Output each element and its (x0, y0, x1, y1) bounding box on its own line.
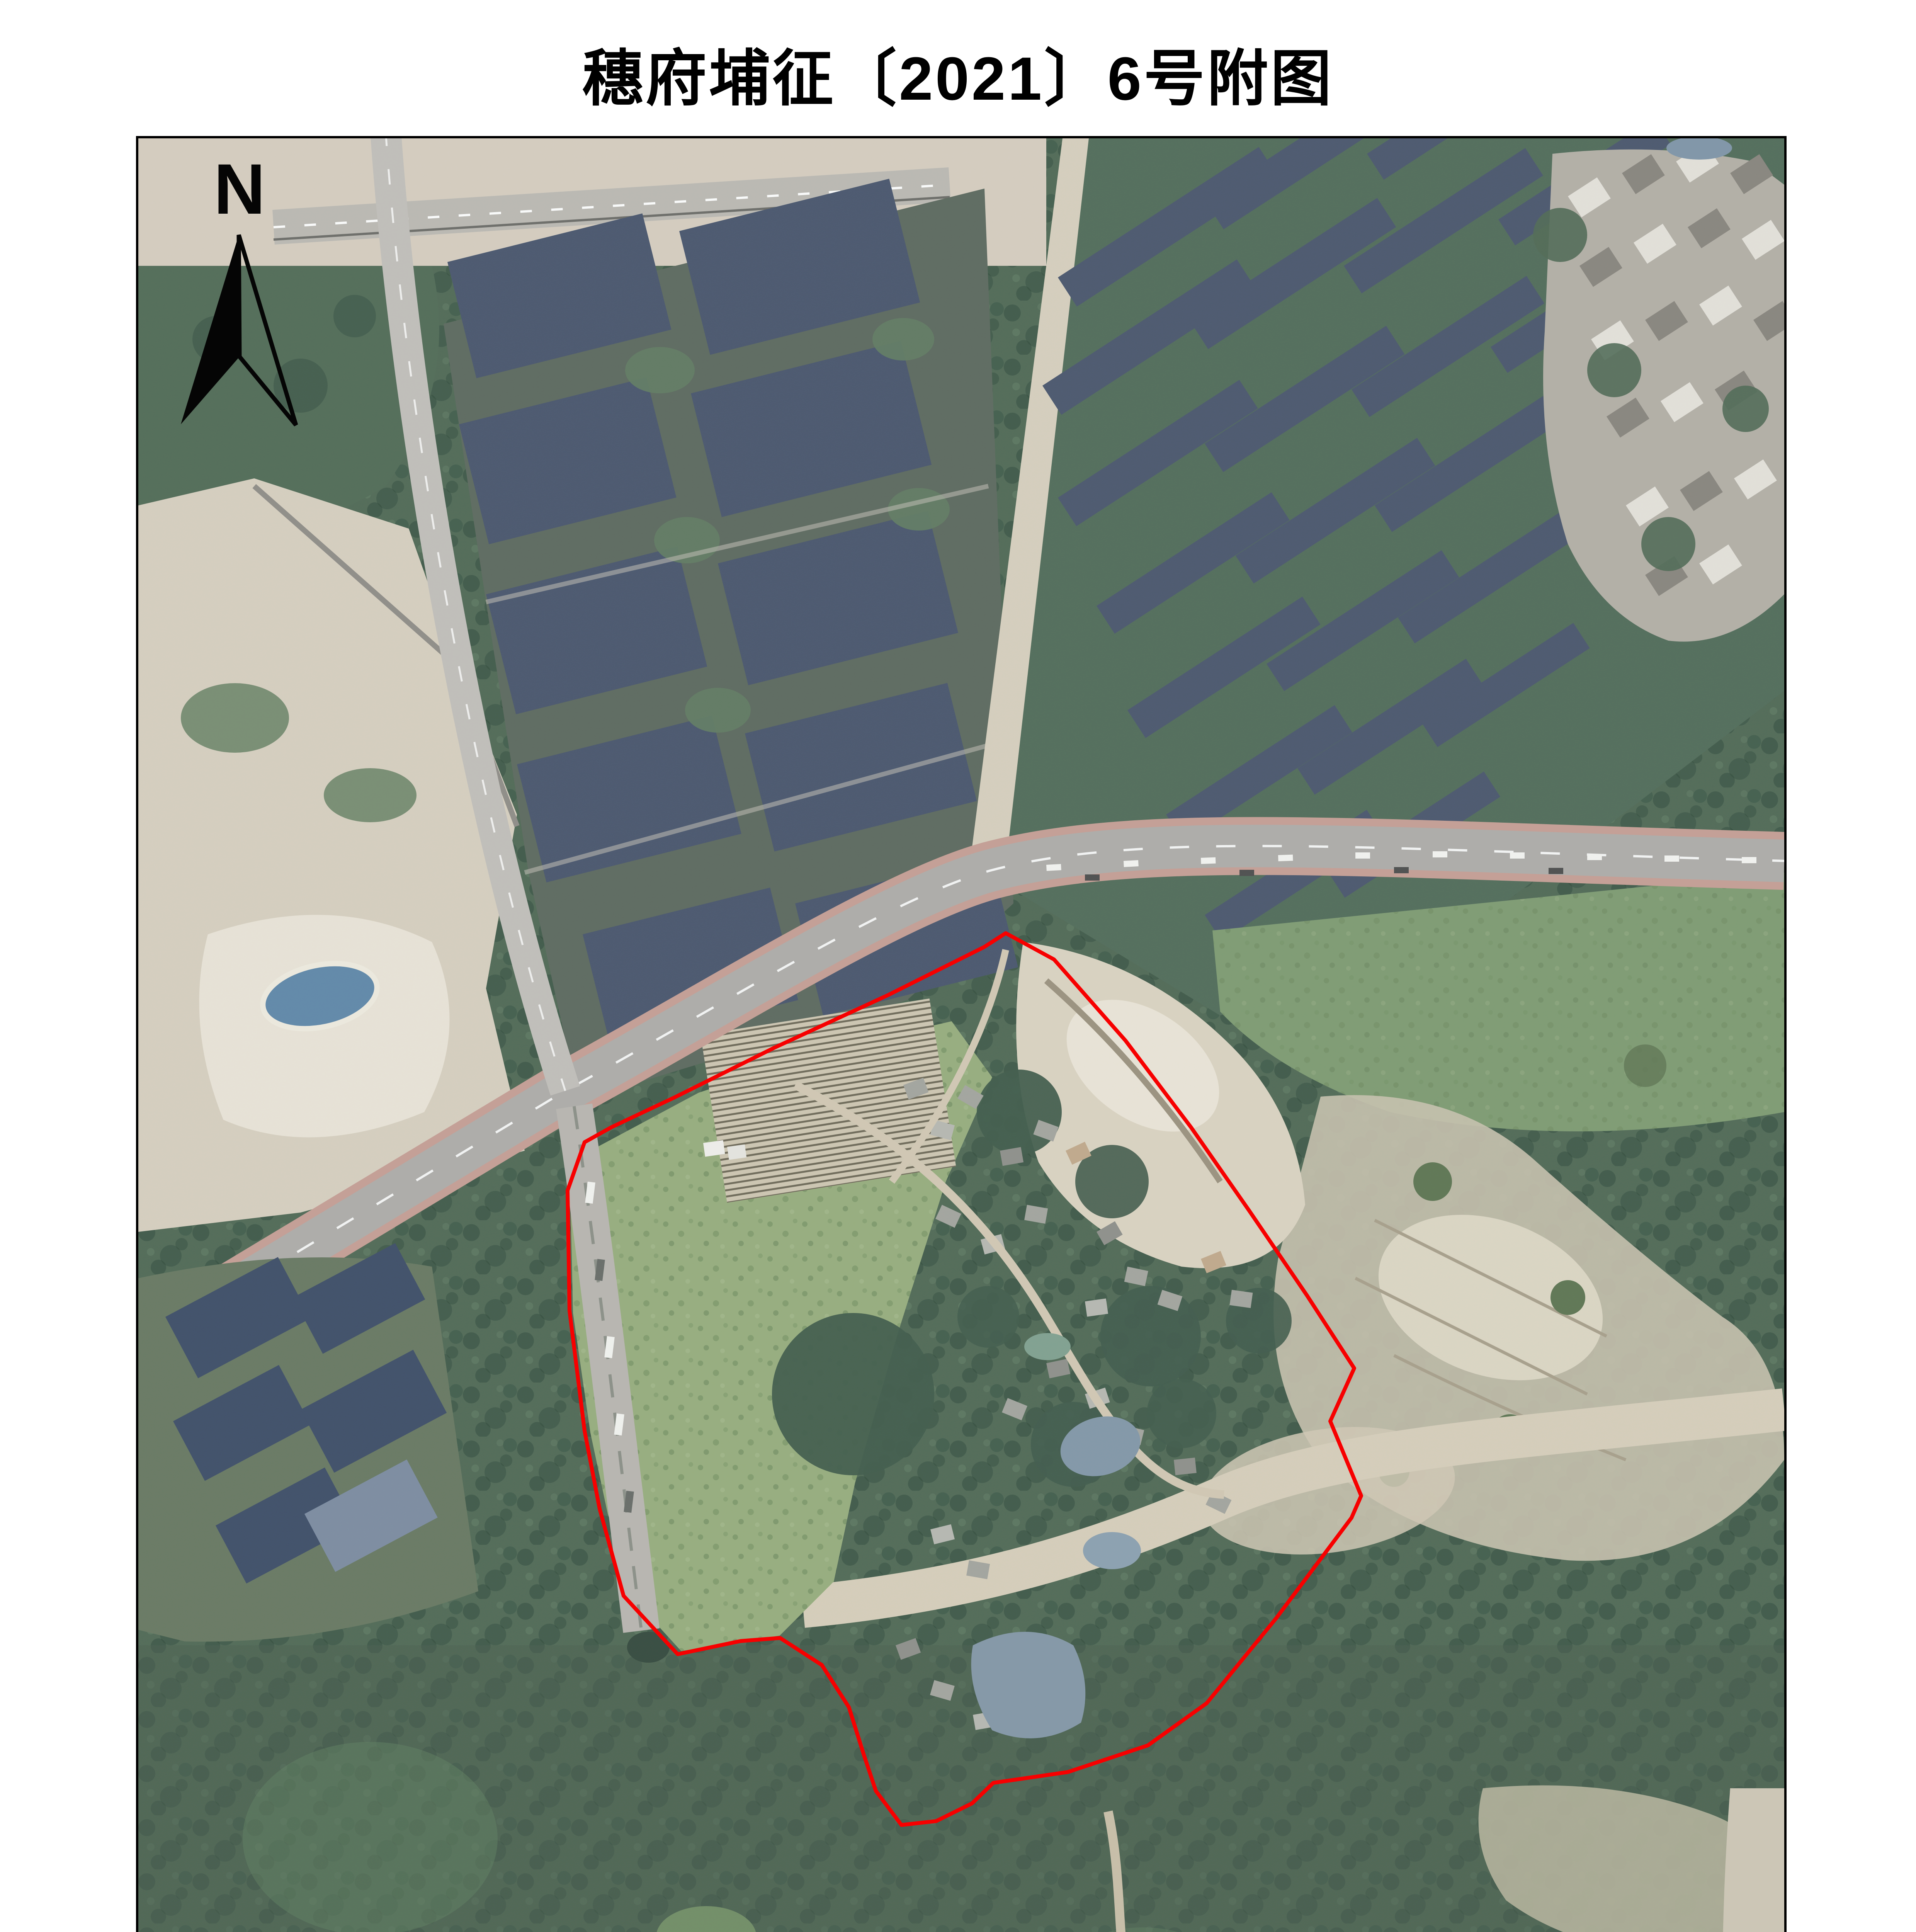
satellite-imagery: N (138, 138, 1784, 1932)
page-title: 穗府埔征〔2021〕6号附图 (0, 46, 1916, 113)
satellite-map: N (136, 136, 1787, 1932)
grain-overlay (138, 138, 1784, 1932)
document-page: 穗府埔征〔2021〕6号附图 (0, 0, 1916, 1932)
north-label: N (214, 150, 265, 229)
